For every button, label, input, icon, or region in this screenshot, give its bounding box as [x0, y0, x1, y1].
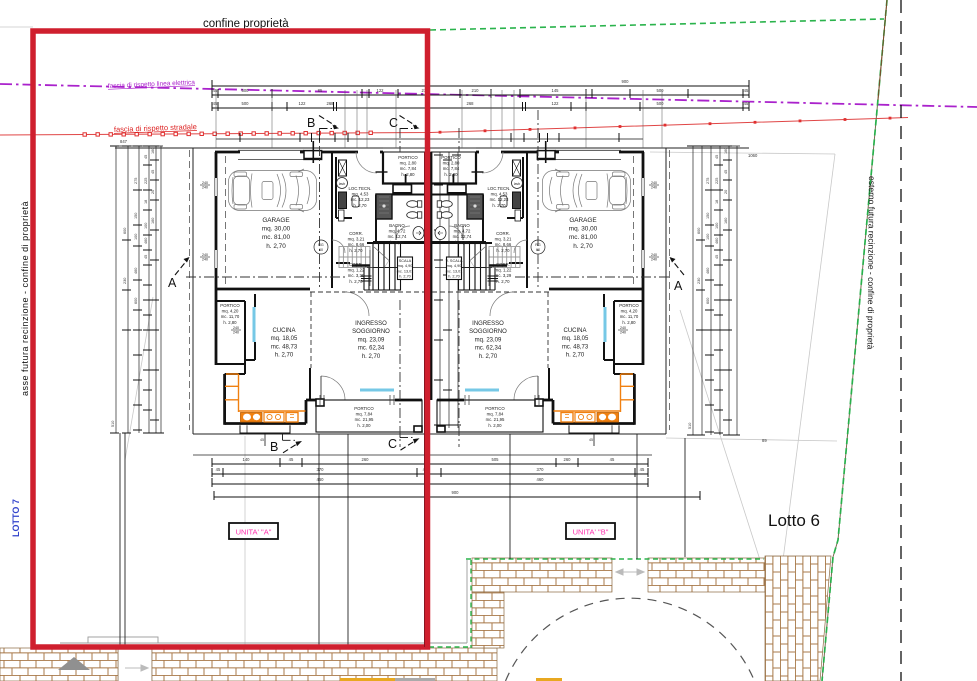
svg-text:505: 505	[492, 457, 500, 462]
svg-text:460: 460	[144, 238, 148, 244]
svg-text:160: 160	[724, 218, 728, 224]
svg-text:45: 45	[715, 255, 719, 259]
svg-text:45: 45	[744, 88, 749, 93]
svg-text:268: 268	[327, 101, 335, 106]
svg-text:160: 160	[724, 148, 728, 154]
svg-text:275: 275	[706, 178, 710, 184]
svg-text:150: 150	[706, 213, 710, 219]
svg-text:160: 160	[151, 218, 155, 224]
svg-text:CORR.mq. 1,22mc. 3,29h. 2,70: CORR.mq. 1,22mc. 3,29h. 2,70	[348, 262, 365, 284]
svg-text:lavb: lavb	[339, 182, 345, 186]
svg-text:45: 45	[216, 467, 221, 472]
svg-text:B: B	[307, 116, 315, 130]
svg-text:370: 370	[537, 467, 545, 472]
svg-text:500: 500	[657, 101, 665, 106]
svg-text:370: 370	[317, 467, 325, 472]
svg-text:45: 45	[744, 101, 749, 106]
svg-text:UNITA' "B": UNITA' "B"	[573, 528, 609, 537]
svg-text:900: 900	[622, 79, 630, 84]
svg-text:100: 100	[144, 223, 148, 229]
svg-text:CORR.mq. 1,22mc. 3,29h. 2,70: CORR.mq. 1,22mc. 3,29h. 2,70	[495, 262, 512, 284]
svg-text:45: 45	[144, 255, 148, 259]
svg-text:CORR.mq. 3,21mc. 8,66h. 2,70: CORR.mq. 3,21mc. 8,66h. 2,70	[495, 231, 512, 253]
svg-text:230: 230	[697, 278, 701, 284]
svg-text:CORR.mq. 3,21mc. 8,66h. 2,70: CORR.mq. 3,21mc. 8,66h. 2,70	[348, 231, 365, 253]
svg-text:268: 268	[467, 101, 475, 106]
svg-text:600: 600	[123, 228, 127, 234]
svg-text:150: 150	[134, 213, 138, 219]
svg-text:260: 260	[362, 457, 370, 462]
svg-text:500: 500	[242, 88, 250, 93]
svg-text:A: A	[168, 276, 177, 290]
svg-text:45: 45	[724, 170, 728, 174]
svg-text:122: 122	[552, 101, 560, 106]
svg-text:45: 45	[715, 155, 719, 159]
svg-text:89: 89	[762, 438, 767, 443]
svg-text:600: 600	[706, 298, 710, 304]
svg-text:210: 210	[472, 88, 480, 93]
svg-text:B: B	[270, 440, 278, 454]
svg-text:160: 160	[151, 148, 155, 154]
svg-text:confine proprietà: confine proprietà	[203, 18, 289, 30]
svg-text:C: C	[389, 116, 398, 130]
svg-text:260: 260	[564, 457, 572, 462]
svg-text:UNITA' "A": UNITA' "A"	[236, 528, 272, 537]
svg-text:100: 100	[715, 223, 719, 229]
svg-text:460: 460	[317, 477, 325, 482]
svg-text:460: 460	[134, 268, 138, 274]
svg-text:C: C	[388, 437, 397, 451]
svg-text:500: 500	[242, 101, 250, 106]
svg-text:230: 230	[123, 278, 127, 284]
svg-text:600: 600	[134, 298, 138, 304]
svg-text:85: 85	[318, 88, 323, 93]
svg-text:45: 45	[589, 438, 593, 442]
svg-text:lavb: lavb	[514, 182, 520, 186]
svg-text:RG: RG	[318, 243, 324, 247]
svg-text:145: 145	[552, 88, 560, 93]
svg-text:225: 225	[144, 178, 148, 184]
svg-text:460: 460	[706, 268, 710, 274]
svg-text:LOTTO 7: LOTTO 7	[11, 499, 21, 537]
svg-text:275: 275	[134, 178, 138, 184]
svg-text:60: 60	[319, 248, 323, 252]
svg-text:45: 45	[144, 155, 148, 159]
svg-text:45: 45	[610, 457, 615, 462]
svg-text:60: 60	[536, 248, 540, 252]
svg-text:500: 500	[657, 88, 665, 93]
svg-text:510: 510	[688, 423, 692, 429]
svg-text:A: A	[674, 279, 683, 293]
svg-text:18: 18	[715, 200, 719, 204]
svg-text:20: 20	[151, 190, 155, 194]
svg-text:45: 45	[640, 467, 645, 472]
svg-text:460: 460	[537, 477, 545, 482]
svg-text:140: 140	[243, 457, 251, 462]
svg-text:225: 225	[715, 178, 719, 184]
svg-text:100: 100	[706, 234, 710, 240]
svg-text:900: 900	[452, 490, 460, 495]
svg-text:45: 45	[151, 170, 155, 174]
svg-text:esterno futura recinzione - co: esterno futura recinzione - confine di p…	[865, 176, 877, 350]
svg-text:asse futura recinzione - confi: asse futura recinzione - confine di prop…	[20, 201, 30, 396]
svg-text:RG: RG	[535, 243, 541, 247]
svg-text:20: 20	[724, 190, 728, 194]
svg-text:1060: 1060	[748, 153, 758, 158]
svg-text:847: 847	[120, 139, 128, 144]
svg-text:100: 100	[134, 234, 138, 240]
svg-text:122: 122	[299, 101, 307, 106]
svg-text:45: 45	[260, 438, 264, 442]
svg-text:45: 45	[213, 88, 218, 93]
svg-text:122: 122	[377, 88, 385, 93]
svg-text:45: 45	[213, 101, 218, 106]
svg-text:510: 510	[111, 421, 115, 427]
svg-text:Lotto 6: Lotto 6	[768, 511, 820, 530]
svg-text:460: 460	[715, 238, 719, 244]
svg-text:600: 600	[697, 228, 701, 234]
svg-text:18: 18	[144, 200, 148, 204]
svg-text:45: 45	[289, 457, 294, 462]
